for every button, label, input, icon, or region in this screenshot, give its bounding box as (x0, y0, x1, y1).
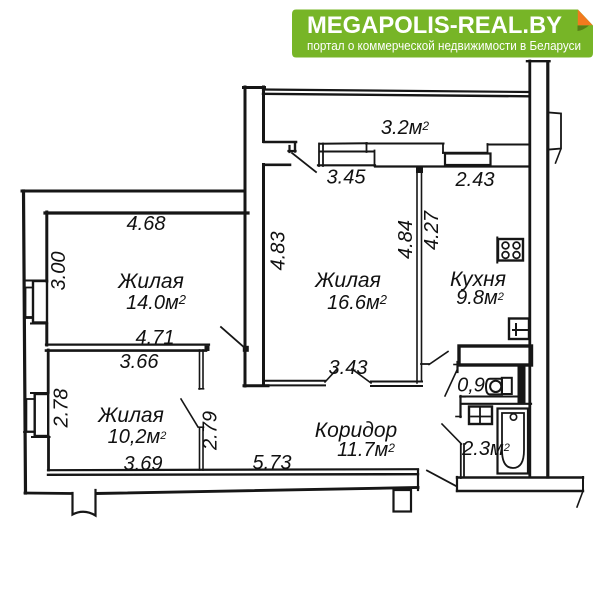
svg-text:3.66: 3.66 (120, 351, 160, 373)
svg-text:MEGAPOLIS-REAL.BY: MEGAPOLIS-REAL.BY (307, 12, 562, 39)
svg-text:2.78: 2.78 (51, 389, 73, 429)
svg-text:3.43: 3.43 (329, 357, 368, 379)
svg-text:Жилая: Жилая (97, 404, 164, 427)
svg-text:4.71: 4.71 (136, 327, 175, 349)
svg-text:4.84: 4.84 (395, 220, 417, 259)
svg-text:3.69: 3.69 (124, 453, 163, 475)
svg-text:4.27: 4.27 (421, 210, 443, 250)
svg-text:4.83: 4.83 (268, 232, 290, 271)
svg-text:11.7м2: 11.7м2 (337, 439, 395, 461)
svg-text:3.45: 3.45 (327, 167, 367, 189)
svg-text:2.79: 2.79 (200, 411, 222, 451)
svg-text:2.3м2: 2.3м2 (461, 438, 510, 460)
svg-text:16.6м2: 16.6м2 (327, 292, 388, 314)
svg-text:10,2м2: 10,2м2 (108, 426, 167, 448)
svg-text:5.73: 5.73 (253, 452, 292, 474)
svg-text:0,9: 0,9 (457, 375, 485, 397)
svg-text:портал о коммерческой недвижим: портал о коммерческой недвижимости в Бел… (307, 39, 581, 53)
svg-text:9.8м2: 9.8м2 (456, 287, 504, 309)
svg-text:Жилая: Жилая (117, 270, 184, 293)
svg-text:Жилая: Жилая (314, 269, 381, 292)
svg-text:4.68: 4.68 (127, 213, 166, 235)
svg-text:2.43: 2.43 (455, 169, 495, 191)
svg-text:3.2м2: 3.2м2 (381, 117, 430, 139)
svg-text:14.0м2: 14.0м2 (126, 292, 187, 314)
svg-text:3.00: 3.00 (48, 252, 70, 291)
